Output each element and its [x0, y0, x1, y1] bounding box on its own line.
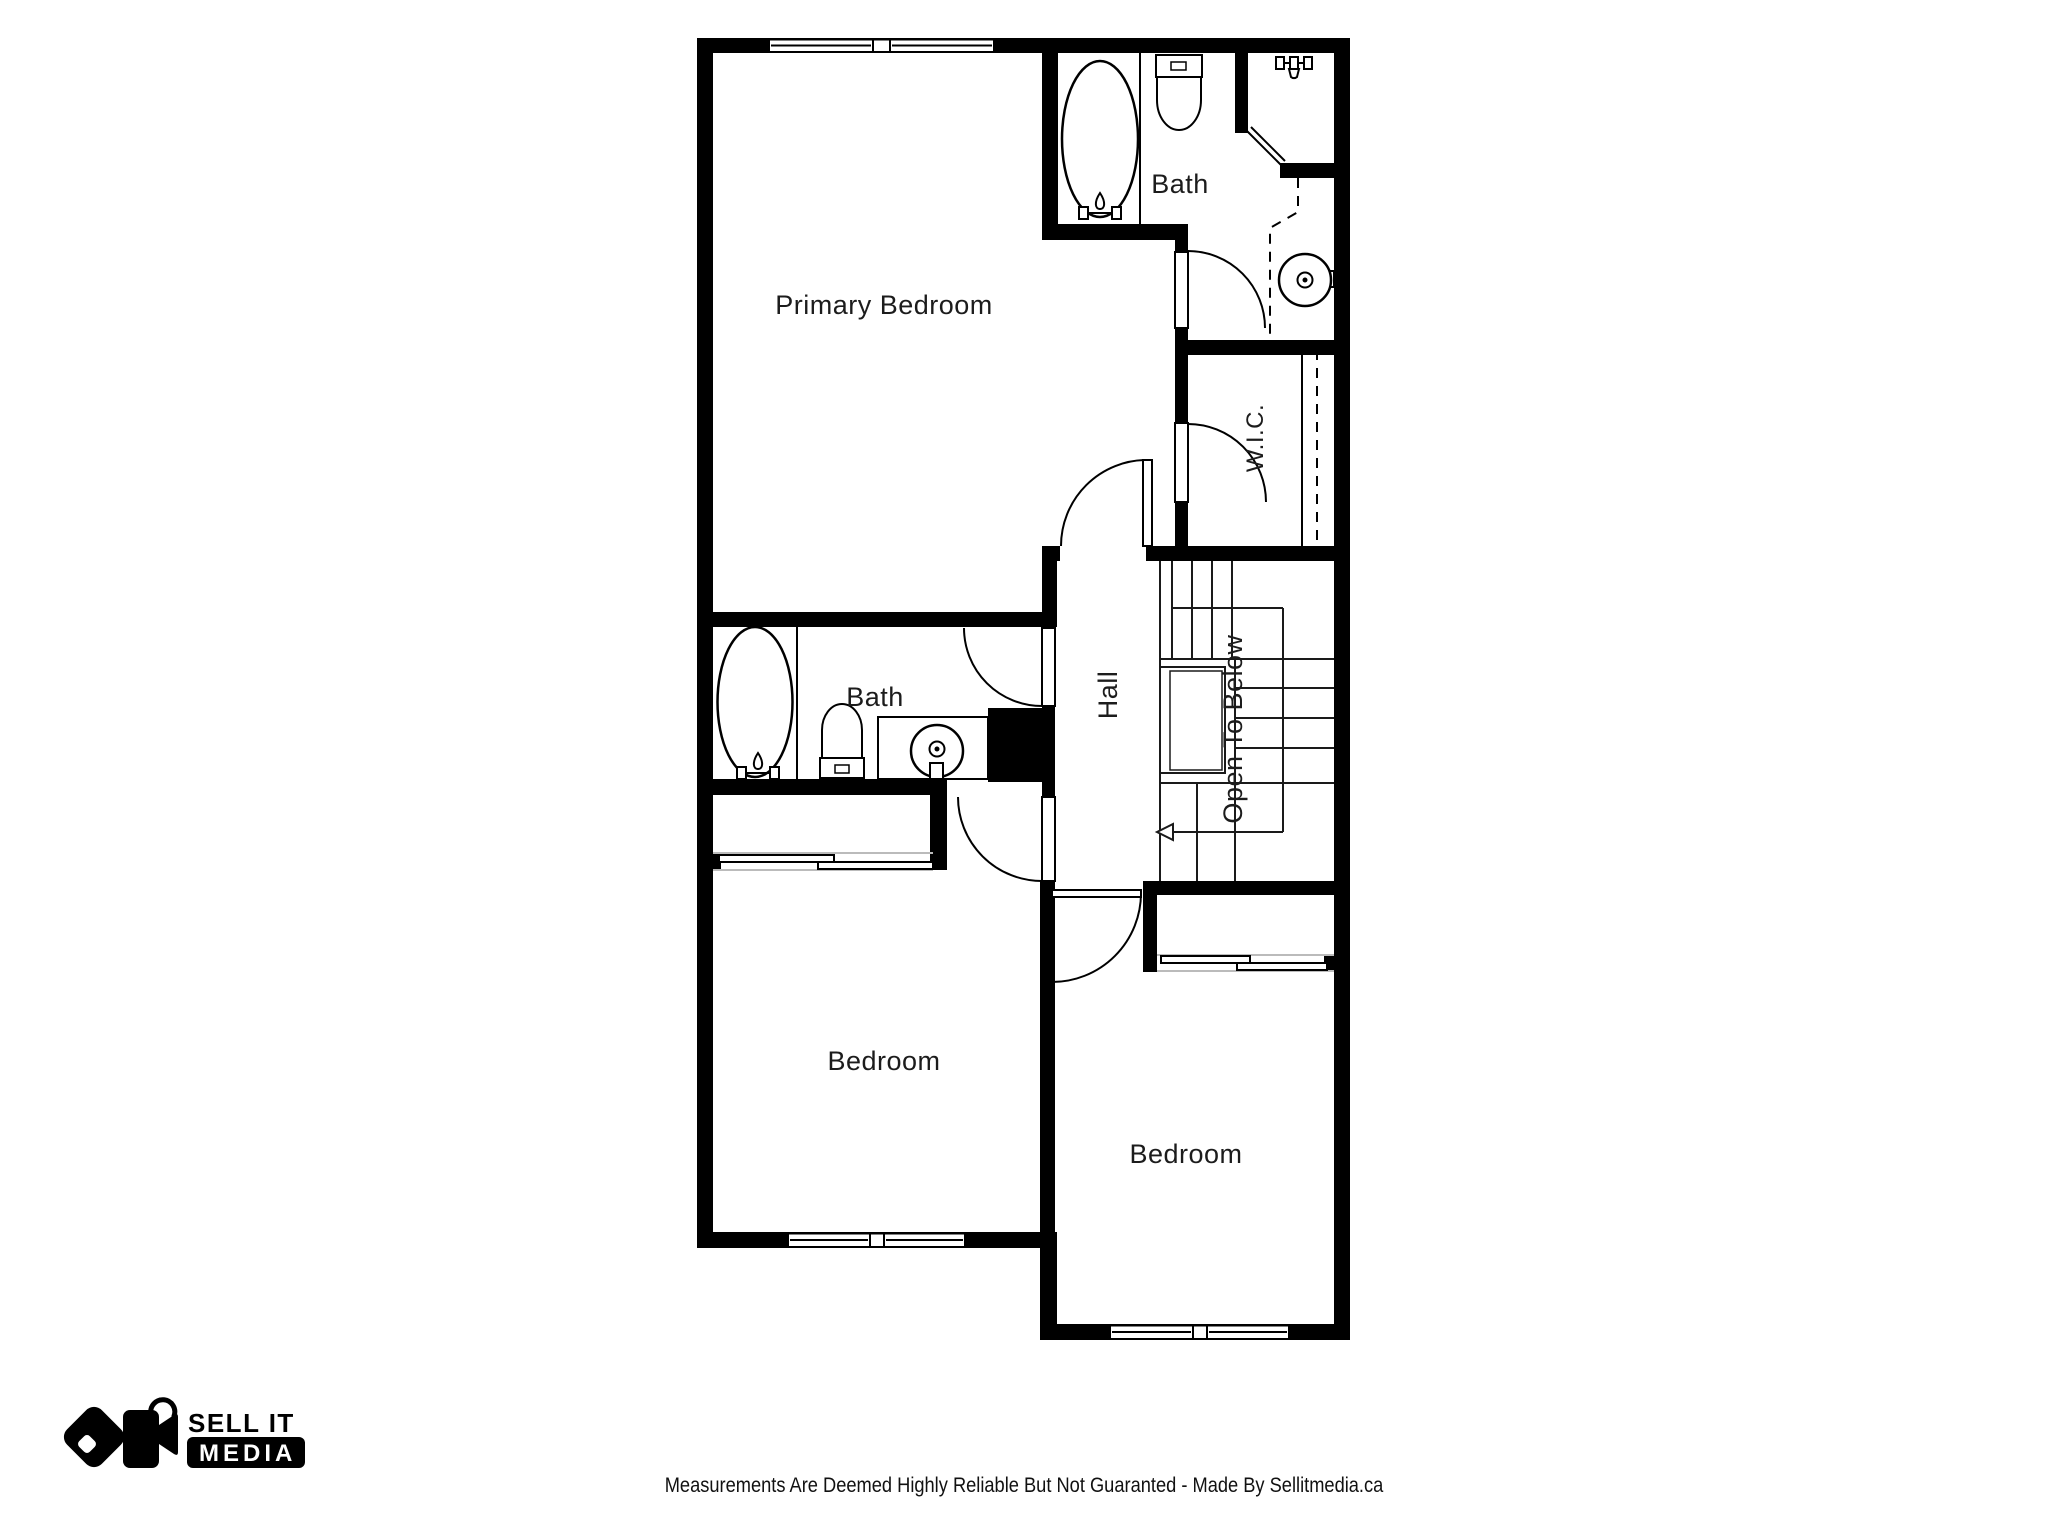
room-label-open-to-below: Open To Below — [1218, 634, 1248, 823]
shower-glass-icon — [1251, 127, 1285, 161]
door-main-bath — [964, 628, 1055, 706]
door-bedroom-right — [1052, 890, 1141, 982]
window-top — [769, 40, 994, 53]
bathtub-icon — [1062, 61, 1138, 219]
room-label-bedroom-left: Bedroom — [827, 1046, 940, 1076]
floor-plan-page: Primary Bedroom Bath W.I.C. Hall Open To… — [0, 0, 2048, 1536]
logo-text-line2: MEDIA — [199, 1440, 296, 1467]
sliding-closet-doors-icon — [1157, 955, 1334, 971]
logo: SELL IT MEDIA — [59, 1400, 305, 1472]
sliding-closet-doors-icon — [713, 853, 933, 870]
bathtub-icon — [718, 627, 793, 779]
window-bedroom-left — [788, 1234, 965, 1248]
pedestal-sink-icon — [1279, 254, 1334, 306]
floor-plan-canvas: Primary Bedroom Bath W.I.C. Hall Open To… — [0, 0, 2048, 1536]
room-label-bedroom-right: Bedroom — [1129, 1139, 1242, 1169]
shower-glass-icon — [1247, 131, 1281, 165]
shower-head-icon — [1276, 57, 1312, 78]
room-label-ensuite-bath: Bath — [1151, 169, 1209, 199]
door-bedroom-left — [958, 797, 1055, 881]
toilet-icon — [1156, 55, 1202, 130]
vanity-sink-icon — [878, 717, 988, 779]
room-label-hall: Hall — [1093, 671, 1123, 720]
room-label-wic: W.I.C. — [1242, 404, 1269, 472]
room-label-main-bath: Bath — [846, 682, 904, 712]
room-label-primary-bedroom: Primary Bedroom — [775, 290, 993, 320]
logo-text-line1: SELL IT — [188, 1408, 295, 1438]
door-primary-bedroom — [1061, 460, 1152, 546]
door-ensuite-bath — [1175, 251, 1265, 328]
footer-disclaimer: Measurements Are Deemed Highly Reliable … — [665, 1474, 1384, 1497]
window-bedroom-right — [1110, 1326, 1289, 1340]
closet-doors — [713, 853, 1334, 971]
toilet-icon — [820, 704, 864, 778]
sell-it-media-logo-icon — [59, 1400, 178, 1472]
